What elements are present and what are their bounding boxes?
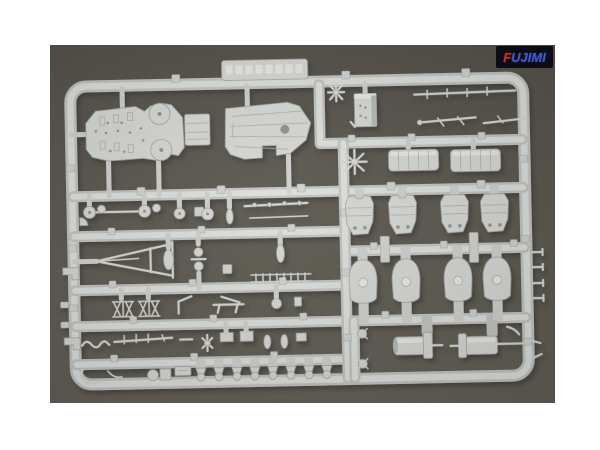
product-photo: FUJIMI: [50, 45, 555, 403]
fujimi-logo: FUJIMI: [496, 46, 553, 68]
sprue-drawing: [50, 45, 555, 403]
fujimi-logo-text: FUJIMI: [503, 51, 546, 64]
page: { "page": { "background": "#ffffff" }, "…: [0, 0, 600, 450]
photo-grain: [50, 45, 555, 403]
